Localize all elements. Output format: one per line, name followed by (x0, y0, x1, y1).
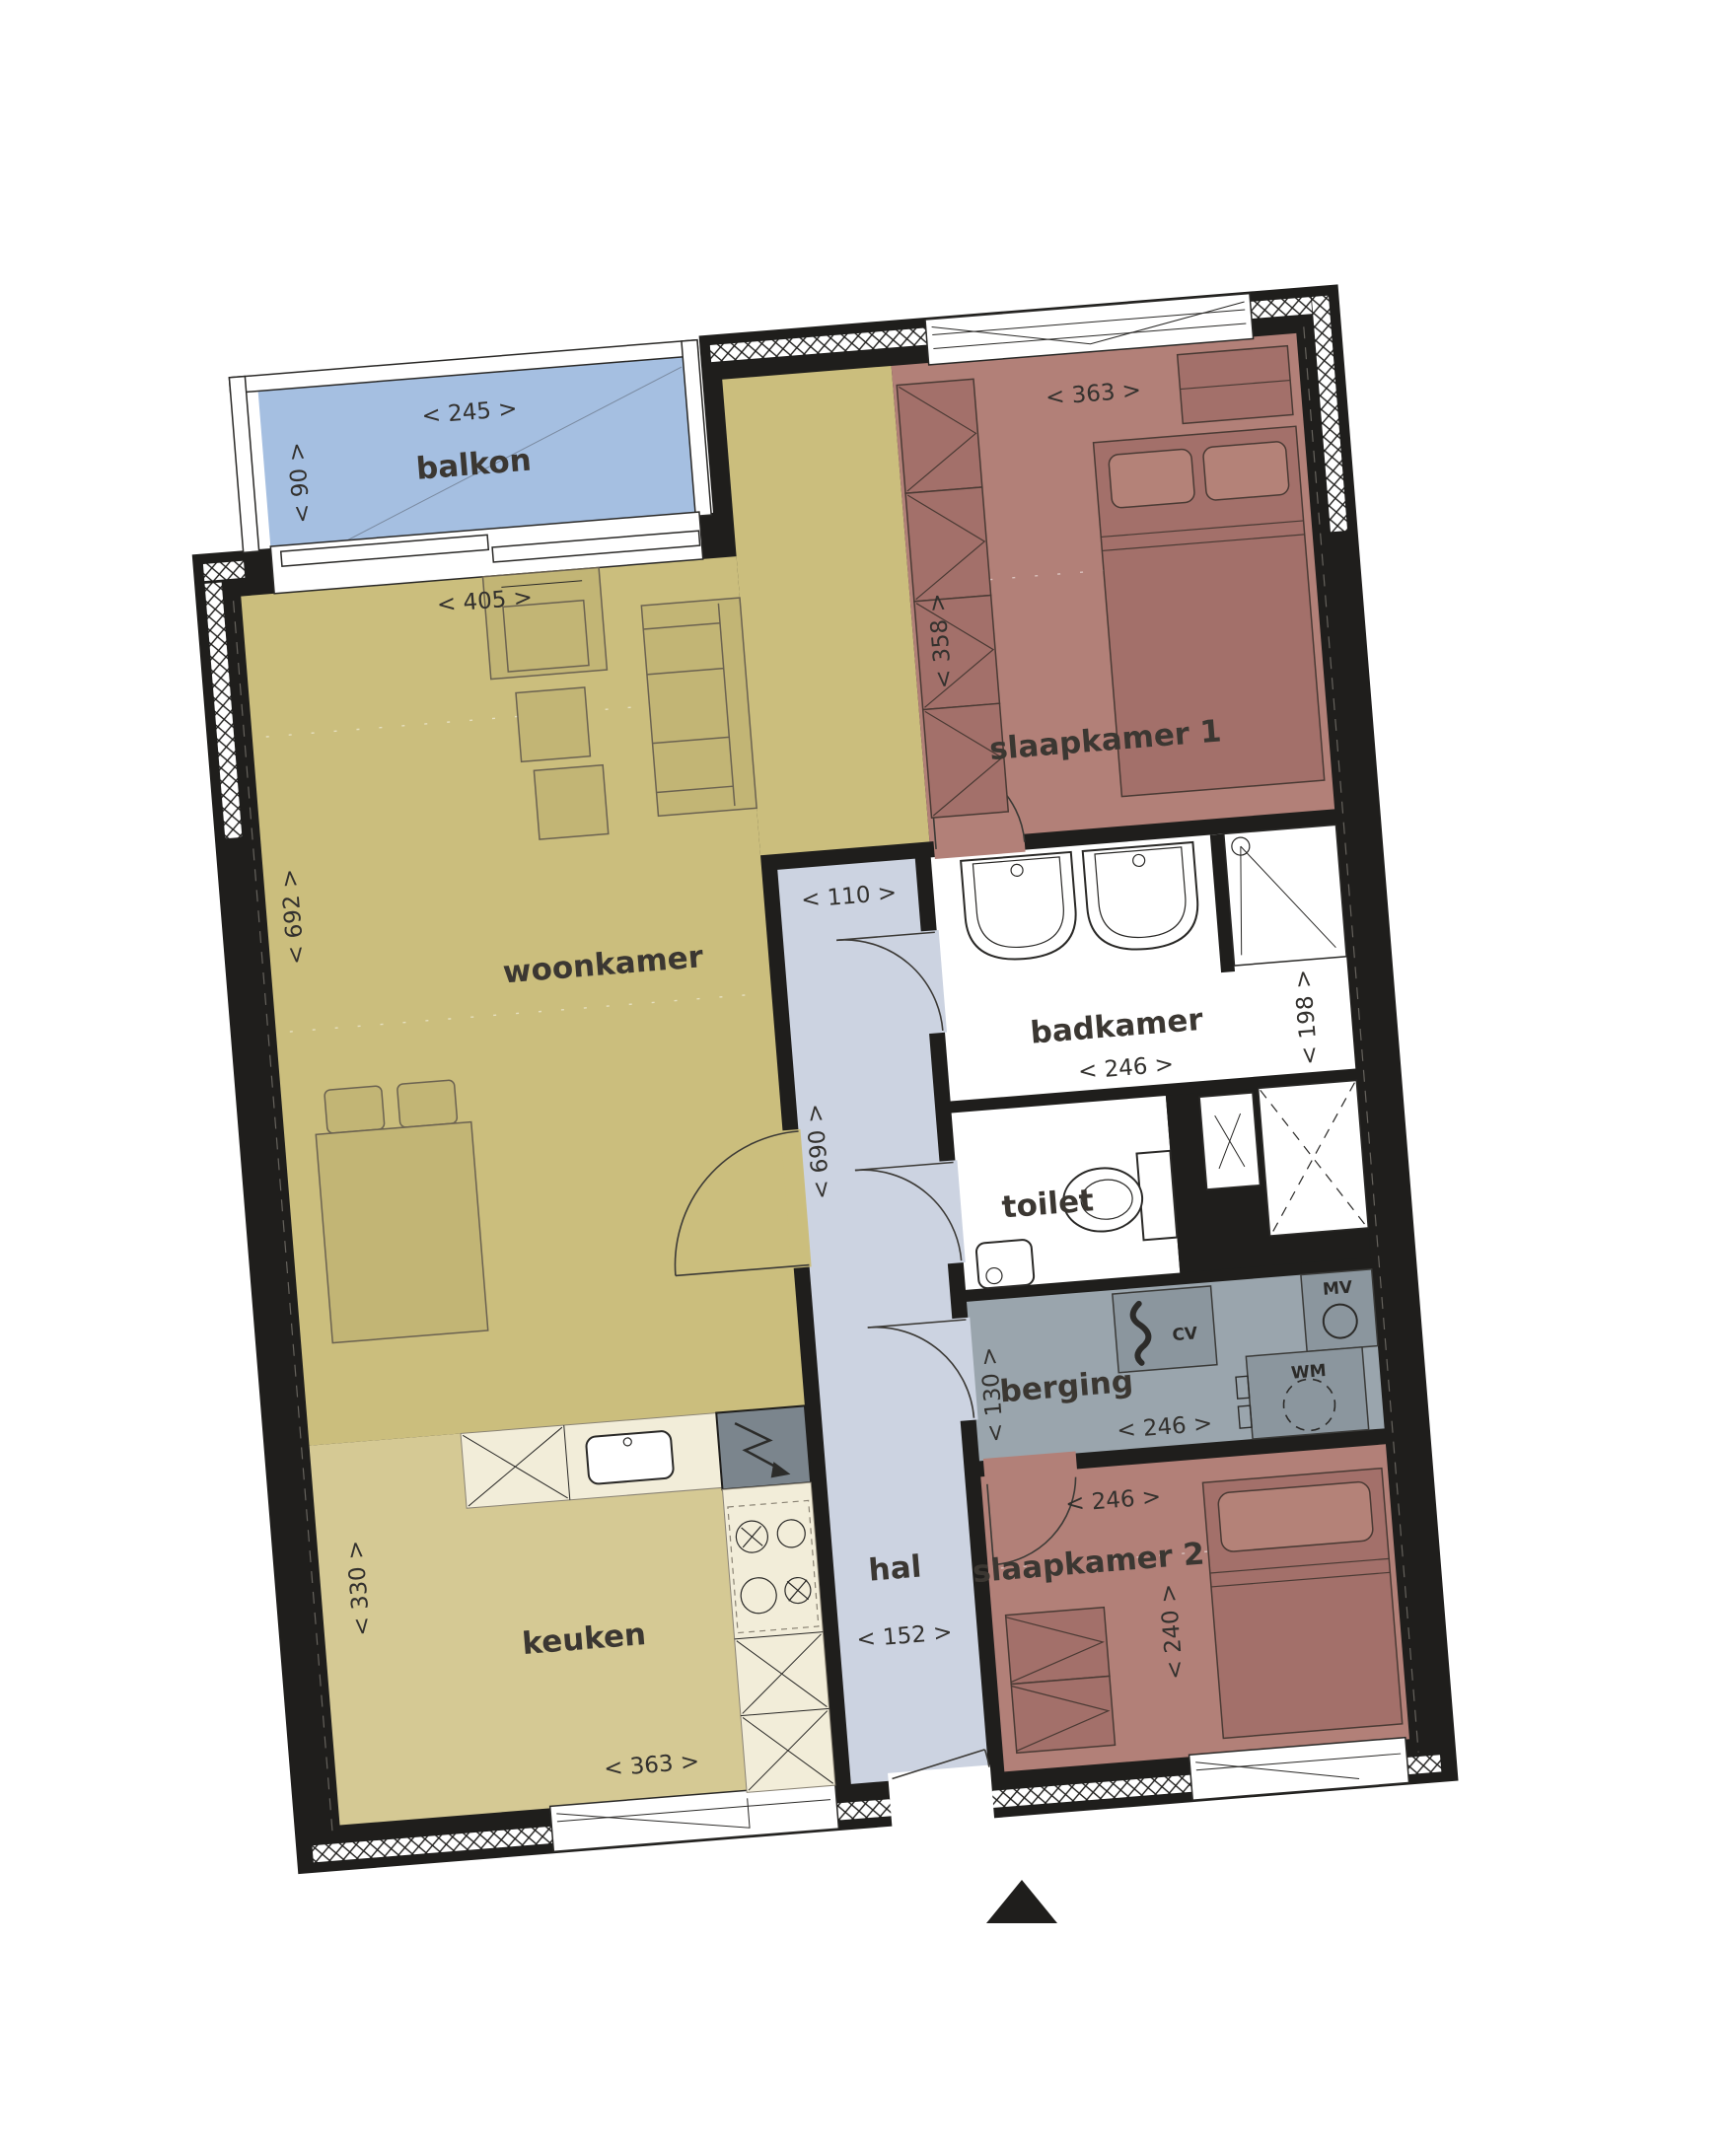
hand-basin (975, 1239, 1035, 1288)
kitchen-sink (586, 1430, 675, 1484)
sofa (641, 598, 757, 816)
washbasin (961, 852, 1079, 964)
mv-label: MV (1322, 1277, 1353, 1299)
utility-shaft (716, 1405, 811, 1489)
pouf (534, 765, 608, 839)
dresser (1178, 346, 1293, 424)
north-arrow-icon (986, 1880, 1057, 1923)
wm-label: WM (1290, 1361, 1327, 1384)
single-bed (1202, 1469, 1402, 1739)
label-hal: hal (867, 1548, 922, 1588)
washbasin (1083, 842, 1201, 954)
pouf (516, 687, 590, 761)
mv-unit: MV (1301, 1269, 1378, 1352)
armchair (482, 567, 607, 679)
cv-label: CV (1172, 1324, 1199, 1345)
shower (1224, 825, 1346, 966)
washing-machine: WM (1234, 1347, 1368, 1440)
floorplan-drawing: CV MV WM (0, 0, 1730, 2156)
floorplan-page: CV MV WM (0, 0, 1730, 2156)
building: CV MV WM (178, 284, 1458, 1876)
cv-boiler: CV (1113, 1286, 1217, 1373)
desk (1006, 1608, 1116, 1754)
label-toilet: toilet (1000, 1183, 1095, 1225)
